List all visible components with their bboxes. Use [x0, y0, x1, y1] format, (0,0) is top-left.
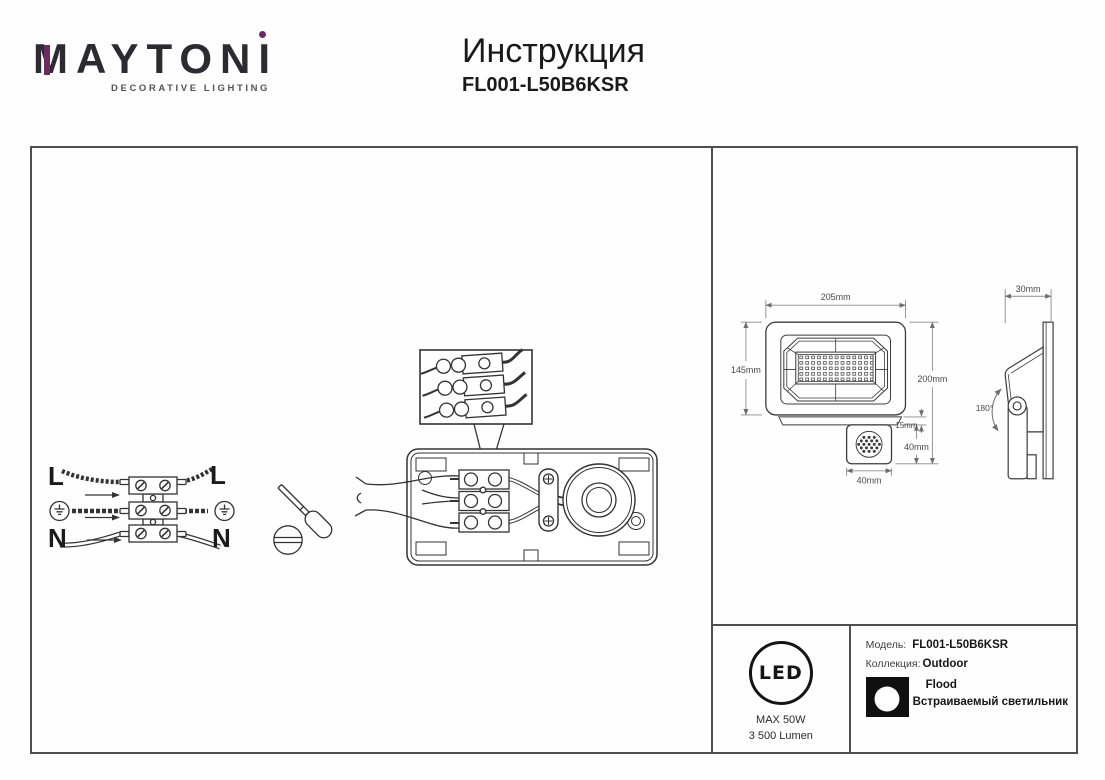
terminal-block-strip [129, 477, 177, 542]
side-dimensions [1005, 289, 1051, 323]
type-description: Встраиваемый светильник [913, 696, 1068, 708]
led-logo-icon: LED [749, 641, 813, 705]
model-value: FL001-L50B6KSR [912, 639, 1008, 651]
content-frame: L N L N [30, 146, 1078, 754]
earth-ground-right-icon [215, 502, 234, 521]
dim-overall-height: 200mm [917, 374, 947, 384]
dim-front-width: 205mm [821, 292, 851, 302]
dim-sensor-height: 40mm [904, 442, 929, 452]
led-badge-cell: LED MAX 50W 3 500 Lumen [713, 626, 851, 752]
page-model-number: FL001-L50B6KSR [462, 74, 645, 97]
wiring-terminal-diagram: L N L N [40, 448, 245, 578]
dim-sensor-width: 40mm [857, 476, 882, 486]
earth-ground-left-icon [50, 502, 69, 521]
title-block: Инструкция FL001-L50B6KSR [462, 33, 645, 97]
luminaire-type-row: Flood Встраиваемый светильник [866, 677, 1068, 717]
slotted-screw-icon [274, 526, 302, 554]
dim-bracket-height: 15mm [895, 421, 918, 430]
instruction-sheet: MAYTONI DECORATIVE LIGHTING Инструкция F… [0, 0, 1105, 780]
installation-area: L N L N [32, 148, 711, 752]
brand-letters-mid: AYTON [76, 35, 258, 82]
rotation-arc [992, 389, 1001, 431]
brand-logo: MAYTONI DECORATIVE LIGHTING [33, 38, 278, 94]
motion-sensor [847, 425, 892, 464]
brand-letter-i: I [258, 38, 278, 80]
junction-box-diagram [352, 338, 674, 578]
collection-value: Outdoor [923, 658, 968, 670]
label-neutral-left: N [48, 523, 67, 553]
brand-tagline: DECORATIVE LIGHTING [33, 83, 278, 94]
dim-depth: 30mm [1016, 284, 1041, 294]
box-terminal-block [459, 470, 509, 532]
label-live-right: L [210, 460, 226, 490]
dimension-drawings: 205mm 145mm 200mm 15mm 40mm 40mm [713, 148, 1076, 624]
brand-letter-m: M [33, 38, 76, 80]
dim-rotation: 180° [976, 403, 994, 413]
max-power: MAX 50W [756, 714, 806, 726]
braided-wire-left [62, 471, 120, 482]
cable-clamp [539, 469, 558, 531]
front-view-drawing [766, 322, 906, 464]
callout-terminal-detail [420, 350, 528, 421]
label-neutral-right: N [212, 523, 231, 553]
side-view-drawing [1005, 322, 1053, 479]
luminous-flux: 3 500 Lumen [749, 730, 813, 742]
type-value: Flood [926, 679, 1068, 691]
collection-label: Коллекция: [866, 658, 921, 670]
screwdriver-icon [254, 468, 349, 563]
model-label: Модель: [866, 639, 907, 651]
spec-panel: 205mm 145mm 200mm 15mm 40mm 40mm [713, 148, 1076, 752]
cable-gland [563, 464, 635, 536]
model-info-cell: Модель:FL001-L50B6KSR Коллекция:Outdoor … [851, 626, 1076, 752]
label-live-left: L [48, 461, 64, 491]
page-title: Инструкция [462, 33, 645, 70]
led-logo-text: LED [759, 662, 803, 684]
dim-front-height: 145mm [731, 365, 761, 375]
brand-name: MAYTONI [33, 38, 278, 80]
recessed-light-icon [866, 677, 909, 717]
spec-bottom-row: LED MAX 50W 3 500 Lumen Модель:FL001-L50… [713, 624, 1076, 752]
